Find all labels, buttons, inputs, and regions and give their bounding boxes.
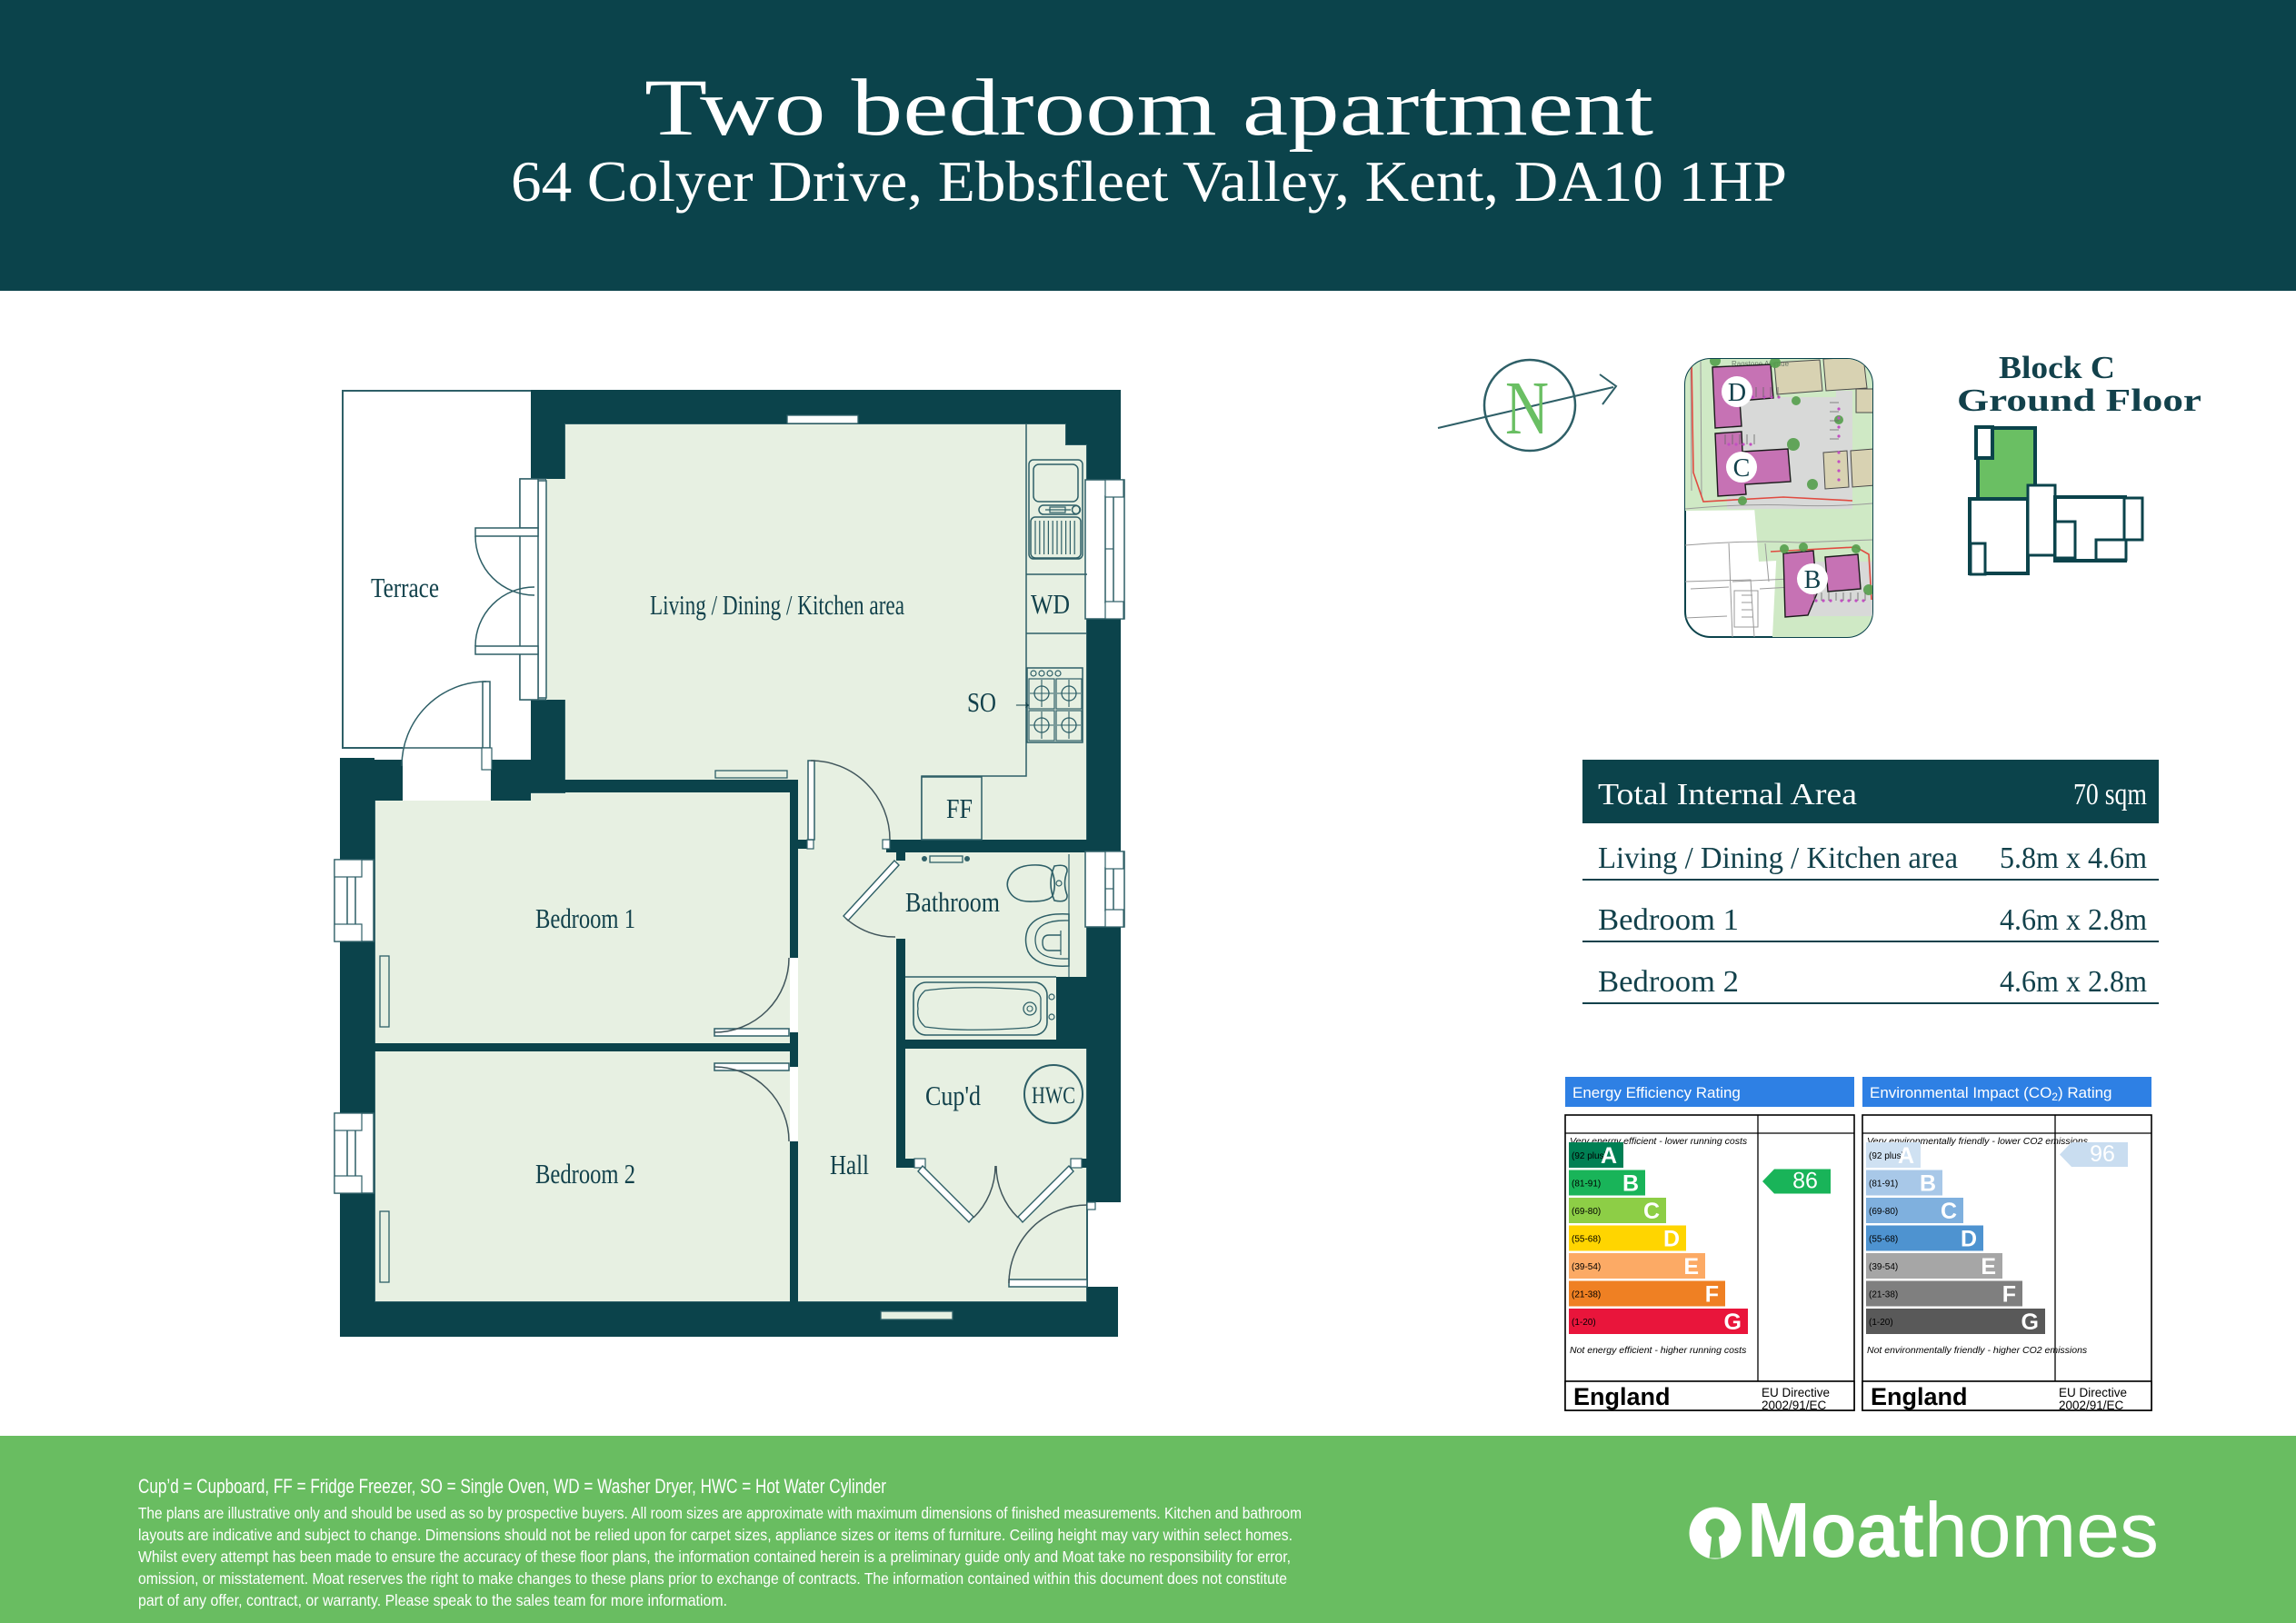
svg-text:86: 86 [1792, 1169, 1818, 1194]
svg-text:Bedroom 1: Bedroom 1 [1598, 903, 1739, 937]
svg-text:96: 96 [2090, 1141, 2115, 1167]
svg-text:England: England [1871, 1383, 1968, 1410]
svg-text:(69-80): (69-80) [1572, 1207, 1601, 1217]
svg-text:E: E [1683, 1254, 1699, 1279]
svg-text:5.8m x 4.6m: 5.8m x 4.6m [2000, 841, 2147, 875]
svg-text:Whilst every attempt has been: Whilst every attempt has been made to en… [138, 1548, 1291, 1566]
svg-text:64 Colyer Drive, Ebbsfleet Val: 64 Colyer Drive, Ebbsfleet Valley, Kent,… [511, 150, 1787, 214]
svg-text:layouts are indicative and sub: layouts are indicative and subject to ch… [138, 1526, 1293, 1544]
svg-text:N: N [1505, 366, 1549, 451]
svg-text:Total Internal Area: Total Internal Area [1598, 778, 1857, 811]
svg-text:B: B [1920, 1171, 1936, 1197]
svg-text:Energy Efficiency Rating: Energy Efficiency Rating [1572, 1084, 1741, 1101]
svg-text:Not energy efficient - higher: Not energy efficient - higher running co… [1570, 1345, 1747, 1356]
svg-text:Block C: Block C [1999, 350, 2115, 385]
svg-text:A: A [1898, 1143, 1914, 1169]
svg-text:EU Directive: EU Directive [2059, 1386, 2127, 1399]
svg-text:D: D [1961, 1227, 1977, 1252]
svg-text:4.6m x 2.8m: 4.6m x 2.8m [2000, 903, 2147, 937]
svg-text:Bedroom 1: Bedroom 1 [535, 902, 635, 934]
svg-text:Moat: Moat [1747, 1488, 1924, 1574]
svg-text:SO: SO [967, 686, 996, 718]
svg-text:EU Directive: EU Directive [1762, 1386, 1830, 1399]
svg-text:G: G [2021, 1309, 2039, 1335]
svg-text:F: F [1705, 1282, 1719, 1308]
svg-text:Hall: Hall [830, 1149, 869, 1180]
svg-text:omission, or misstatement. Moa: omission, or misstatement. Moat reserves… [138, 1569, 1287, 1588]
svg-text:Cup’d = Cupboard, FF = Fridge: Cup’d = Cupboard, FF = Fridge Freezer, S… [138, 1475, 886, 1498]
svg-text:England: England [1573, 1383, 1671, 1410]
svg-text:(39-54): (39-54) [1572, 1262, 1601, 1272]
svg-text:HWC: HWC [1032, 1082, 1075, 1109]
svg-text:homes: homes [1924, 1488, 2159, 1574]
svg-text:(21-38): (21-38) [1869, 1290, 1898, 1300]
svg-text:2002/91/EC: 2002/91/EC [1762, 1399, 1827, 1412]
svg-text:Living / Dining / Kitchen area: Living / Dining / Kitchen area [1598, 841, 1958, 875]
svg-text:(39-54): (39-54) [1869, 1262, 1898, 1272]
svg-text:(55-68): (55-68) [1869, 1235, 1898, 1245]
svg-text:D: D [1728, 379, 1746, 407]
svg-text:A: A [1601, 1143, 1617, 1169]
svg-text:(81-91): (81-91) [1869, 1180, 1898, 1190]
svg-text:(81-91): (81-91) [1572, 1180, 1601, 1190]
svg-text:Bedroom 2: Bedroom 2 [535, 1158, 635, 1190]
svg-text:Ground Floor: Ground Floor [1957, 383, 2201, 418]
svg-text:(69-80): (69-80) [1869, 1207, 1898, 1217]
svg-text:Cup'd: Cup'd [925, 1080, 981, 1111]
svg-text:D: D [1663, 1227, 1680, 1252]
svg-text:part of any offer, contract, o: part of any offer, contract, or warranty… [138, 1591, 727, 1609]
svg-text:C: C [1941, 1199, 1957, 1224]
svg-text:Two bedroom apartment: Two bedroom apartment [644, 64, 1653, 153]
svg-text:B: B [1804, 566, 1822, 594]
svg-text:C: C [1643, 1199, 1660, 1224]
svg-text:(1-20): (1-20) [1869, 1318, 1893, 1328]
svg-text:2002/91/EC: 2002/91/EC [2059, 1399, 2124, 1412]
svg-text:(21-38): (21-38) [1572, 1290, 1601, 1300]
svg-text:Not environmentally friendly -: Not environmentally friendly - higher CO… [1867, 1345, 2088, 1356]
svg-text:(55-68): (55-68) [1572, 1235, 1601, 1245]
svg-text:Bathroom: Bathroom [905, 886, 1000, 918]
svg-text:B: B [1622, 1171, 1639, 1197]
svg-text:E: E [1981, 1254, 1996, 1279]
svg-text:(1-20): (1-20) [1572, 1318, 1596, 1328]
svg-text:Terrace: Terrace [371, 572, 439, 603]
svg-text:G: G [1724, 1309, 1742, 1335]
svg-text:→: → [1012, 691, 1033, 714]
svg-text:70 sqm: 70 sqm [2073, 778, 2147, 811]
svg-text:FF: FF [946, 792, 973, 824]
svg-text:C: C [1733, 454, 1751, 483]
svg-text:WD: WD [1031, 588, 1070, 620]
svg-text:Environmental Impact (CO2) Rat: Environmental Impact (CO2) Rating [1870, 1084, 2112, 1103]
svg-text:4.6m x 2.8m: 4.6m x 2.8m [2000, 965, 2147, 999]
svg-text:Bedroom 2: Bedroom 2 [1598, 965, 1739, 999]
svg-text:The plans are illustrative onl: The plans are illustrative only and shou… [138, 1504, 1302, 1522]
svg-text:Living / Dining / Kitchen area: Living / Dining / Kitchen area [650, 589, 904, 621]
svg-text:F: F [2002, 1282, 2016, 1308]
